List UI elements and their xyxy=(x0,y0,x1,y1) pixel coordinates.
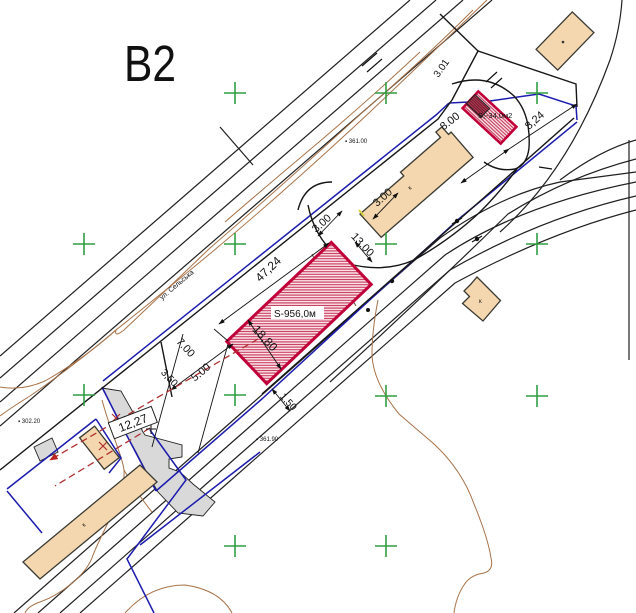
svg-text:▪ 361.90: ▪ 361.90 xyxy=(256,437,279,443)
svg-text:▪ 302.20: ▪ 302.20 xyxy=(18,419,41,425)
svg-text:▪ 361.00: ▪ 361.00 xyxy=(345,139,368,145)
svg-text:S-956,0м: S-956,0м xyxy=(274,309,316,320)
svg-text:к: к xyxy=(479,299,482,305)
svg-text:S₂-34,0м2: S₂-34,0м2 xyxy=(478,111,512,120)
svg-text:B2: B2 xyxy=(124,35,176,92)
